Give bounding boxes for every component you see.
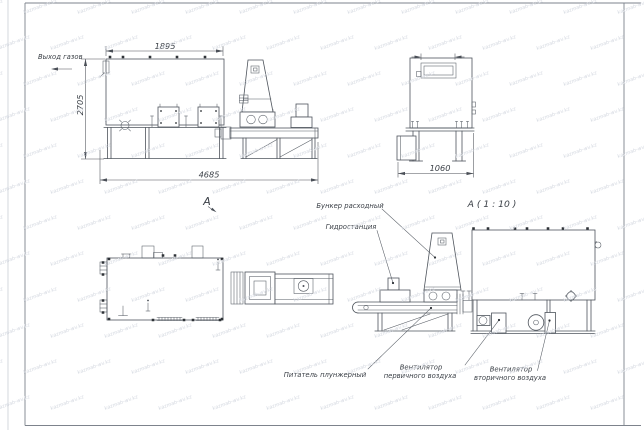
feeder-conveyor-detail <box>353 302 458 313</box>
watermark-text: kazmab-wv.kz <box>131 142 167 160</box>
watermark-text: kazmab-wv.kz <box>482 178 518 196</box>
watermark-text: kazmab-wv.kz <box>347 0 383 16</box>
watermark-text: kazmab-wv.kz <box>590 34 626 52</box>
watermark-text: kazmab-wv.kz <box>158 322 194 340</box>
watermark-text: kazmab-wv.kz <box>482 34 518 52</box>
watermark-text: kazmab-wv.kz <box>401 214 437 232</box>
watermark-text: kazmab-wv.kz <box>23 0 59 16</box>
watermark-text: kazmab-wv.kz <box>347 70 383 88</box>
gas-outlet-callout: Выход газов <box>38 53 83 71</box>
watermark-text: kazmab-wv.kz <box>347 286 383 304</box>
watermark-text: kazmab-wv.kz <box>212 178 248 196</box>
watermark-text: kazmab-wv.kz <box>617 142 644 160</box>
watermark-text: kazmab-wv.kz <box>77 358 113 376</box>
hatch-box-2 <box>198 104 219 127</box>
watermark-text: kazmab-wv.kz <box>536 106 572 124</box>
watermark-text: kazmab-wv.kz <box>563 214 599 232</box>
watermark-text: kazmab-wv.kz <box>0 178 31 196</box>
watermark-text: kazmab-wv.kz <box>0 34 31 52</box>
watermark-text: kazmab-wv.kz <box>374 394 410 412</box>
watermark-text: kazmab-wv.kz <box>50 178 86 196</box>
watermark-text: kazmab-wv.kz <box>536 34 572 52</box>
watermark-text: kazmab-wv.kz <box>0 214 4 232</box>
view-a-marker: А <box>202 195 216 212</box>
watermark-text: kazmab-wv.kz <box>104 394 140 412</box>
watermark-text: kazmab-wv.kz <box>0 250 31 268</box>
watermark-text: kazmab-wv.kz <box>617 358 644 376</box>
watermark-text: kazmab-wv.kz <box>293 142 329 160</box>
watermark-text: kazmab-wv.kz <box>23 142 59 160</box>
watermark-text: kazmab-wv.kz <box>401 0 437 16</box>
watermark-text: kazmab-wv.kz <box>617 214 644 232</box>
watermark-text: kazmab-wv.kz <box>0 70 4 88</box>
watermark-text: kazmab-wv.kz <box>0 142 4 160</box>
watermark-text: kazmab-wv.kz <box>50 322 86 340</box>
watermark-text: kazmab-wv.kz <box>374 250 410 268</box>
watermark-text: kazmab-wv.kz <box>293 214 329 232</box>
watermark-text: kazmab-wv.kz <box>347 142 383 160</box>
watermark-text: kazmab-wv.kz <box>617 70 644 88</box>
watermark-text: kazmab-wv.kz <box>374 178 410 196</box>
watermark-text: kazmab-wv.kz <box>212 394 248 412</box>
watermark-text: kazmab-wv.kz <box>266 394 302 412</box>
watermark-text: kazmab-wv.kz <box>563 0 599 16</box>
watermark-text: kazmab-wv.kz <box>293 70 329 88</box>
watermark-text: kazmab-wv.kz <box>0 286 4 304</box>
watermark-text: kazmab-wv.kz <box>158 178 194 196</box>
dim-4685-text: 4685 <box>199 170 220 180</box>
cad-drawing: 1895 2705 4685 Выход газов А <box>0 0 644 430</box>
watermark-text: kazmab-wv.kz <box>131 214 167 232</box>
watermark-text: kazmab-wv.kz <box>104 34 140 52</box>
watermark-text: kazmab-wv.kz <box>482 106 518 124</box>
watermark-text: kazmab-wv.kz <box>185 142 221 160</box>
watermark-text: kazmab-wv.kz <box>50 250 86 268</box>
primary-fan-label-line2: первичного воздуха <box>384 372 457 380</box>
watermark-text: kazmab-wv.kz <box>23 214 59 232</box>
drawing-sheet: 1895 2705 4685 Выход газов А <box>0 0 644 430</box>
watermark-text: kazmab-wv.kz <box>590 178 626 196</box>
watermark-text: kazmab-wv.kz <box>320 394 356 412</box>
watermark-text: kazmab-wv.kz <box>239 358 275 376</box>
watermark-text: kazmab-wv.kz <box>320 106 356 124</box>
watermark-text: kazmab-wv.kz <box>131 358 167 376</box>
watermark-text: kazmab-wv.kz <box>50 34 86 52</box>
valve-wheel <box>120 120 131 131</box>
watermark-text: kazmab-wv.kz <box>23 358 59 376</box>
watermark-text: kazmab-wv.kz <box>239 142 275 160</box>
side-tabs <box>472 102 476 114</box>
watermark-text: kazmab-wv.kz <box>509 70 545 88</box>
feeder-conveyor-side <box>215 127 318 139</box>
watermark-text: kazmab-wv.kz <box>482 394 518 412</box>
watermark-text: kazmab-wv.kz <box>23 286 59 304</box>
watermark-text: kazmab-wv.kz <box>563 142 599 160</box>
watermark-text: kazmab-wv.kz <box>0 394 31 412</box>
lifting-hook <box>595 242 601 249</box>
watermark-text: kazmab-wv.kz <box>0 106 31 124</box>
watermark-text: kazmab-wv.kz <box>455 0 491 16</box>
watermark-text: kazmab-wv.kz <box>509 0 545 16</box>
watermark-text: kazmab-wv.kz <box>239 214 275 232</box>
watermark-text: kazmab-wv.kz <box>185 214 221 232</box>
watermark-text: kazmab-wv.kz <box>77 142 113 160</box>
furnace-body-plan <box>107 258 223 320</box>
watermark-text: kazmab-wv.kz <box>536 178 572 196</box>
watermark-text: kazmab-wv.kz <box>185 0 221 16</box>
watermark-text: kazmab-wv.kz <box>509 142 545 160</box>
watermark-text: kazmab-wv.kz <box>266 34 302 52</box>
watermark-text: kazmab-wv.kz <box>23 70 59 88</box>
watermark-text: kazmab-wv.kz <box>50 394 86 412</box>
watermark-text: kazmab-wv.kz <box>563 358 599 376</box>
watermark-text: kazmab-wv.kz <box>104 322 140 340</box>
watermark-text: kazmab-wv.kz <box>428 34 464 52</box>
watermark-text: kazmab-wv.kz <box>266 250 302 268</box>
watermark-text: kazmab-wv.kz <box>212 322 248 340</box>
dim-1060-text: 1060 <box>430 163 451 173</box>
watermark-text: kazmab-wv.kz <box>428 394 464 412</box>
watermark-text: kazmab-wv.kz <box>563 70 599 88</box>
watermark-text: kazmab-wv.kz <box>104 178 140 196</box>
watermark-text: kazmab-wv.kz <box>374 106 410 124</box>
watermark-text: kazmab-wv.kz <box>536 394 572 412</box>
watermark-text: kazmab-wv.kz <box>293 0 329 16</box>
watermark-text: kazmab-wv.kz <box>428 178 464 196</box>
watermark-text: kazmab-wv.kz <box>0 0 4 16</box>
watermark-text: kazmab-wv.kz <box>266 178 302 196</box>
watermark-text: kazmab-wv.kz <box>77 0 113 16</box>
watermark-text: kazmab-wv.kz <box>374 34 410 52</box>
watermark-text: kazmab-wv.kz <box>239 0 275 16</box>
watermark-text: kazmab-wv.kz <box>320 322 356 340</box>
watermark-text: kazmab-wv.kz <box>77 214 113 232</box>
view-a-110-label: А ( 1 : 10 ) <box>467 199 517 210</box>
watermark-text: kazmab-wv.kz <box>0 322 31 340</box>
watermark-text: kazmab-wv.kz <box>320 34 356 52</box>
gas-outlet-label: Выход газов <box>38 53 83 61</box>
watermark-text: kazmab-wv.kz <box>131 0 167 16</box>
watermark-text: kazmab-wv.kz <box>320 178 356 196</box>
watermark-text: kazmab-wv.kz <box>266 322 302 340</box>
watermark-text: kazmab-wv.kz <box>590 394 626 412</box>
bunker-label: Бункер расходный <box>316 202 384 210</box>
watermark-text: kazmab-wv.kz <box>212 34 248 52</box>
watermark-text: kazmab-wv.kz <box>0 358 4 376</box>
watermark-text: kazmab-wv.kz <box>590 106 626 124</box>
watermark-text: kazmab-wv.kz <box>185 358 221 376</box>
view-a-label: А <box>202 195 211 208</box>
watermark-text: kazmab-wv.kz <box>320 250 356 268</box>
watermark-text: kazmab-wv.kz <box>158 394 194 412</box>
watermark-text: kazmab-wv.kz <box>617 0 644 16</box>
watermark-text: kazmab-wv.kz <box>455 142 491 160</box>
watermark-text: kazmab-wv.kz <box>617 286 644 304</box>
